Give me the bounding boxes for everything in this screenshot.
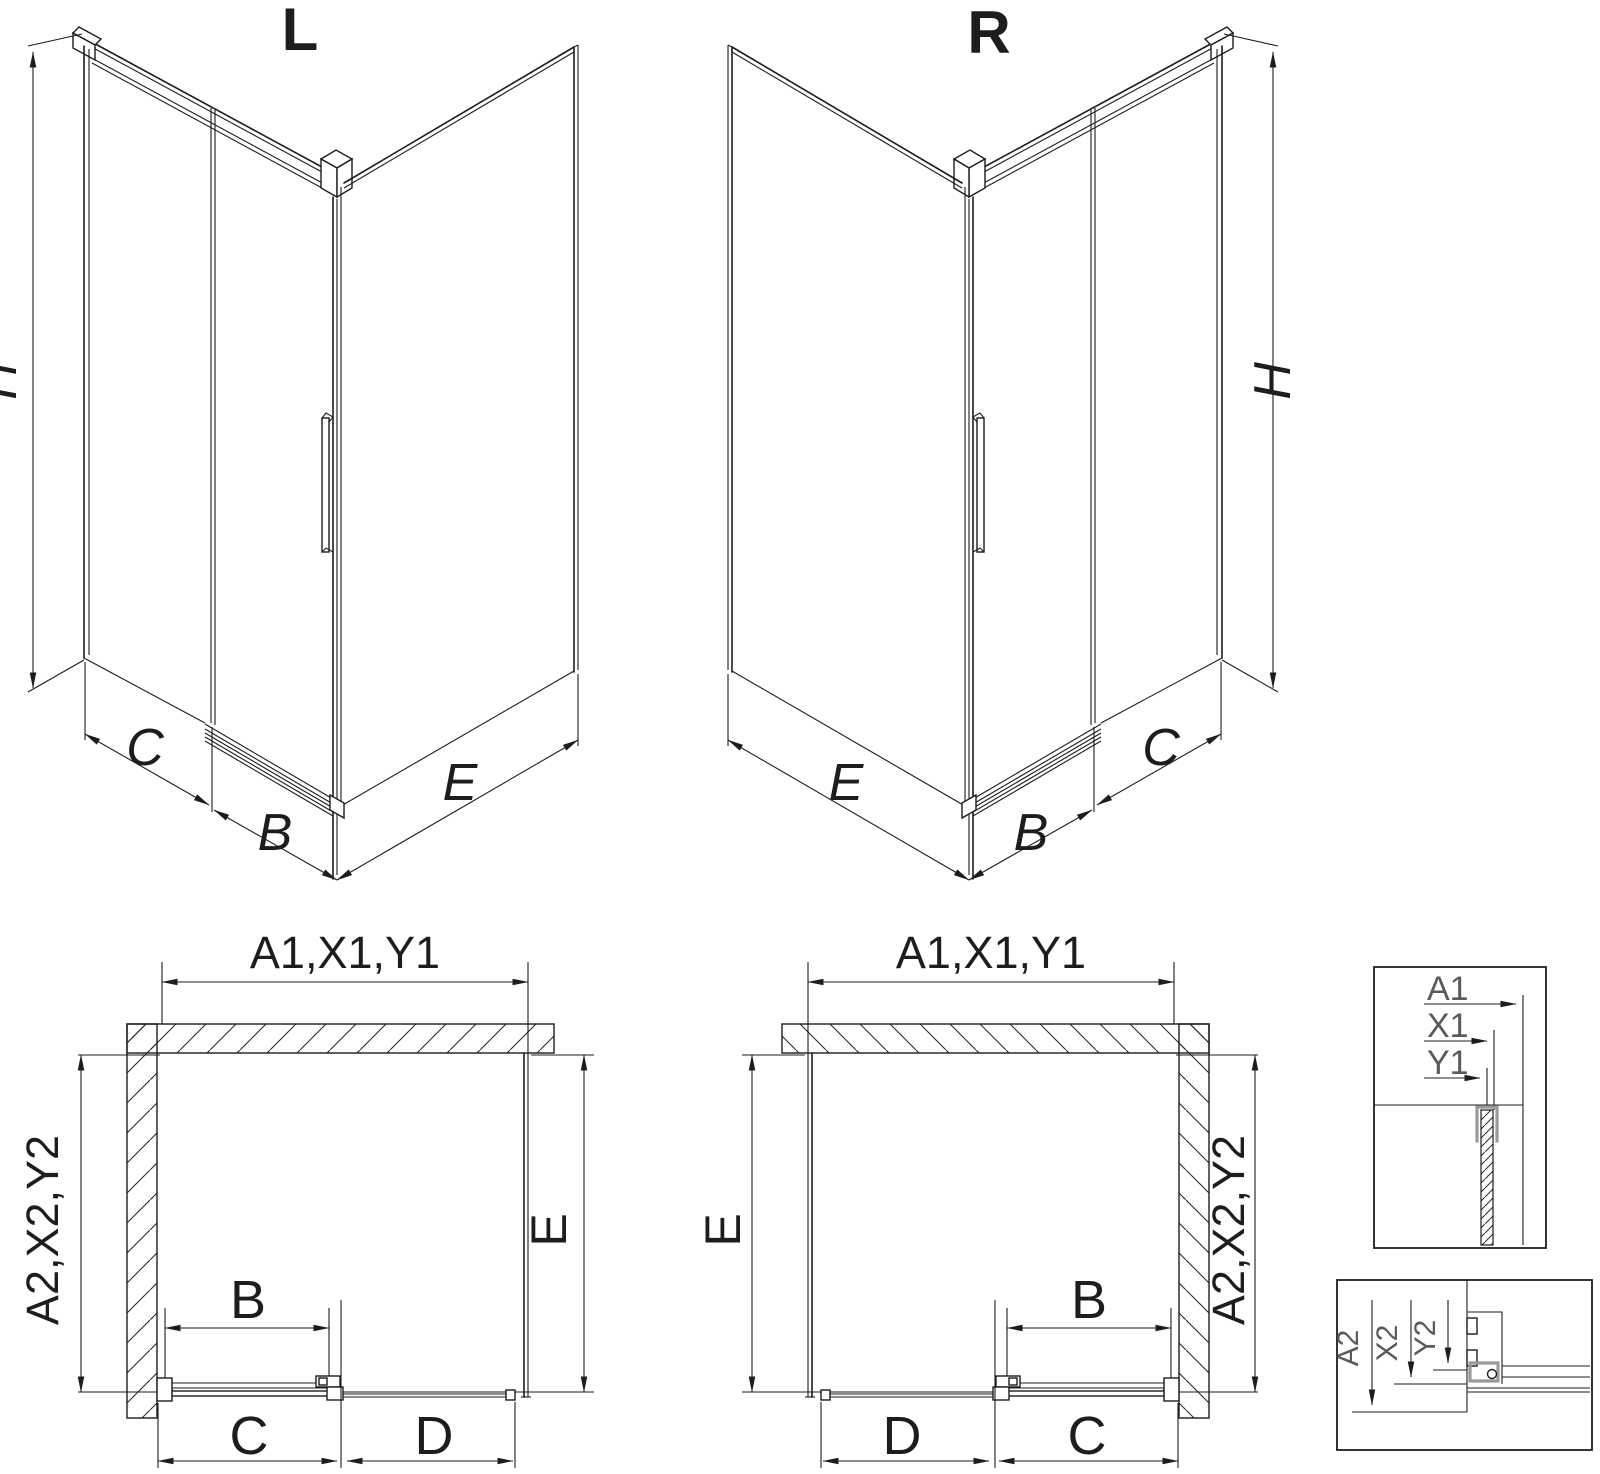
plan-right-door-dim-label: B	[1071, 1270, 1107, 1330]
variant-label-left: L	[282, 0, 319, 63]
plan-right-top-dim-label: A1,X1,Y1	[896, 927, 1086, 978]
dim-label-e-right: E	[829, 754, 865, 812]
detail-a1-label: A1	[1427, 970, 1469, 1008]
iso-view-left-labels: L H C B E	[0, 0, 479, 862]
detail-y1-label: Y1	[1427, 1044, 1469, 1082]
dim-label-b-left: B	[258, 804, 293, 862]
iso-enclosure-geometry-mirrored	[728, 27, 1278, 880]
iso-view-right-labels: R H C B E	[829, 0, 1302, 862]
plan-left-top-dim-label: A1,X1,Y1	[250, 927, 440, 978]
detail-bottom-track: A2 X2 Y2	[1332, 1280, 1592, 1450]
plan-right-d-dim-label: D	[883, 1406, 922, 1466]
plan-left-c-dim-label: C	[230, 1406, 269, 1466]
dim-label-c-left: C	[126, 719, 164, 777]
plan-view-geometry-mirrored	[742, 962, 1258, 1468]
plan-left-depth-dim-label: E	[521, 1213, 577, 1246]
dim-label-h-left: H	[0, 362, 28, 400]
detail-a2-label: A2	[1332, 1330, 1365, 1367]
drawing-canvas: L H C B E R H C B E	[0, 0, 1600, 1474]
plan-right-wall-dim-label: A2,X2,Y2	[1203, 1135, 1254, 1325]
plan-right-depth-dim-label: E	[695, 1213, 751, 1246]
dim-label-h-right: H	[1244, 362, 1302, 400]
technical-drawing-page: { "drawing": { "subject": "corner shower…	[0, 0, 1600, 1474]
dim-label-b-right: B	[1014, 804, 1049, 862]
detail-wall-profile: A1 X1 Y1	[1374, 967, 1546, 1248]
detail-x2-label: X2	[1371, 1325, 1404, 1362]
plan-view-left-labels: A1,X1,Y1 A2,X2,Y2 E B C D	[17, 927, 577, 1466]
variant-label-right: R	[967, 0, 1010, 66]
plan-left-d-dim-label: D	[415, 1406, 454, 1466]
dim-label-e-left: E	[443, 754, 479, 812]
iso-enclosure-geometry	[28, 27, 578, 880]
plan-left-door-dim-label: B	[230, 1270, 266, 1330]
plan-left-wall-dim-label: A2,X2,Y2	[17, 1135, 68, 1325]
dim-label-c-right: C	[1142, 719, 1180, 777]
detail-x1-label: X1	[1427, 1007, 1469, 1045]
detail-y2-label: Y2	[1409, 1320, 1442, 1357]
plan-right-c-dim-label: C	[1068, 1406, 1107, 1466]
plan-view-geometry	[78, 962, 594, 1468]
